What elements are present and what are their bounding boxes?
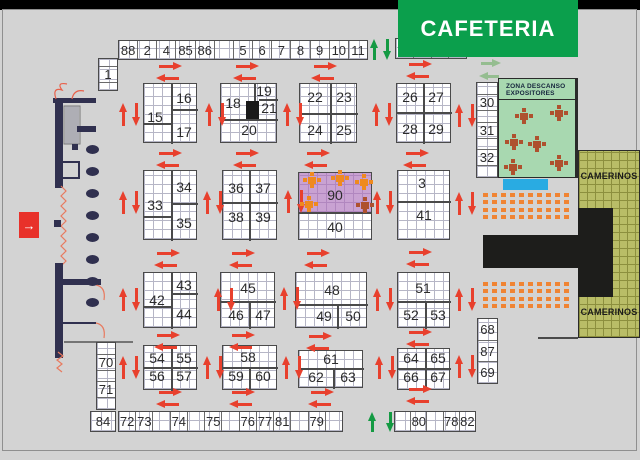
rest-area: ZONA DESCANSO EXPOSITORES: [498, 78, 578, 178]
rest-area-title-line2: EXPOSITORES: [506, 90, 555, 97]
blue-marker: [503, 179, 548, 190]
stage-runway: [483, 235, 580, 268]
entrance-arrow-icon: →: [23, 218, 36, 233]
camerinos-top-label: CAMERINOS: [579, 171, 639, 181]
entrance-marker: →: [19, 212, 39, 238]
rest-area-title: ZONA DESCANSO EXPOSITORES: [499, 79, 575, 100]
expo-floor-plan: CAMERINOS CAMERINOS ZONA DESCANSO EXPOSI…: [0, 0, 640, 460]
camerinos-bottom-label: CAMERINOS: [579, 307, 639, 317]
cafeteria-label: CAFETERIA: [421, 16, 556, 42]
hall-outline: [2, 9, 637, 451]
stage-head: [578, 208, 613, 297]
cafeteria-banner: CAFETERIA: [398, 0, 578, 57]
rest-area-title-line1: ZONA DESCANSO: [506, 83, 565, 90]
